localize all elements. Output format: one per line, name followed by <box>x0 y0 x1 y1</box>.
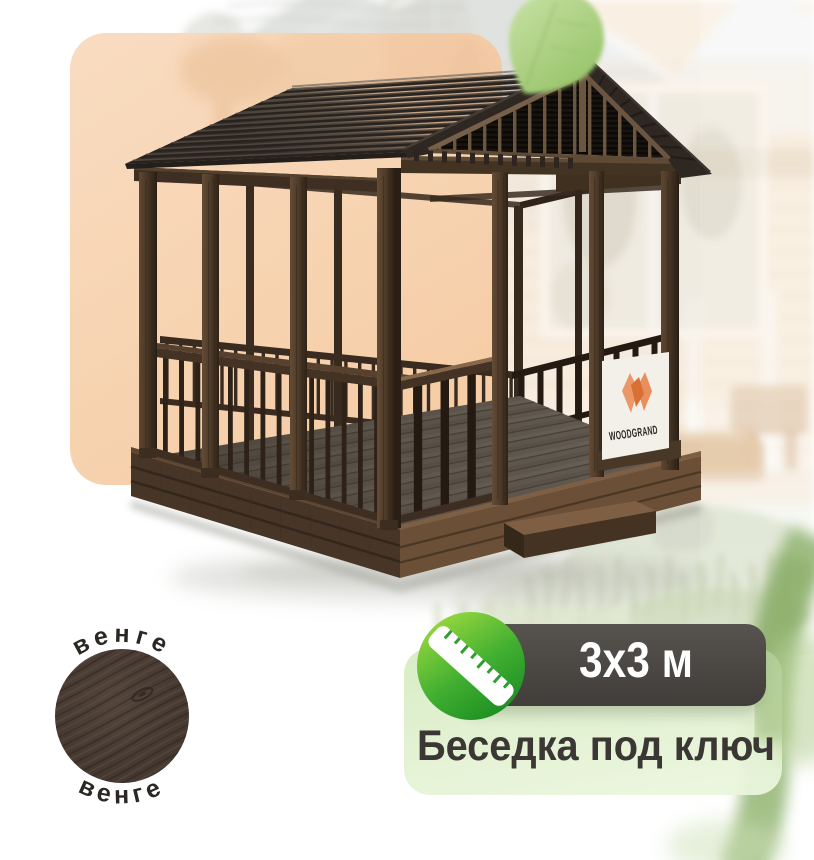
svg-text:Беседка под ключ: Беседка под ключ <box>417 722 775 770</box>
svg-text:3x3 м: 3x3 м <box>579 632 693 688</box>
